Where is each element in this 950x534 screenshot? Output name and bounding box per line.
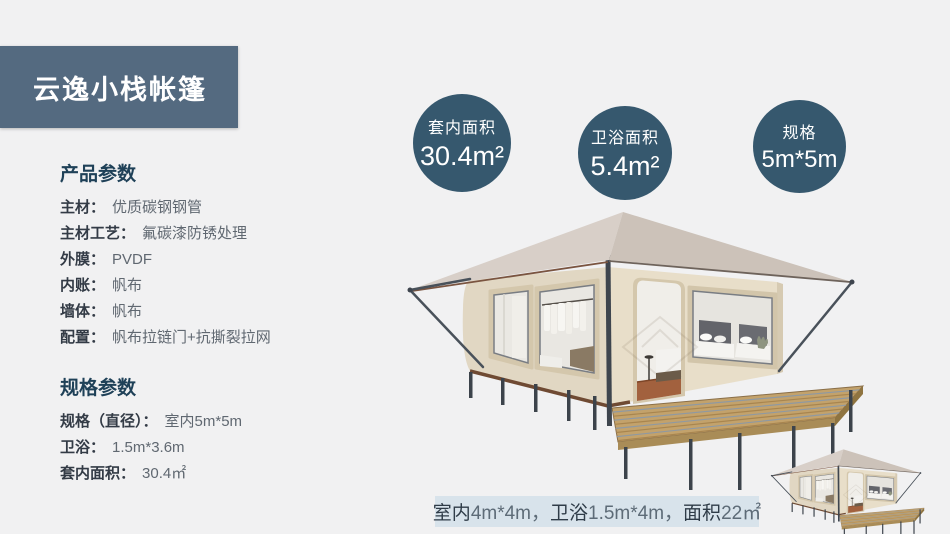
- param-value: 1.5m*3.6m: [112, 439, 185, 456]
- badge-indoor-area: 套内面积 30.4m²: [413, 94, 511, 192]
- badge-bath-area: 卫浴面积 5.4m²: [578, 106, 672, 200]
- param-value: 帆布拉链门+抗撕裂拉网: [112, 329, 271, 346]
- caption-value: 1.5m*4m，: [588, 498, 683, 525]
- param-value: 帆布: [112, 277, 142, 294]
- param-row: 墙体：帆布: [60, 299, 400, 325]
- page-title: 云逸小栈帐篷: [0, 68, 207, 107]
- param-value: 氟碳漆防锈处理: [142, 225, 247, 242]
- caption-label: 卫浴: [550, 498, 588, 525]
- badge-label: 规格: [782, 119, 816, 143]
- param-label: 内账：: [60, 277, 105, 294]
- badge-label: 卫浴面积: [591, 124, 659, 148]
- badge-value: 30.4m²: [420, 141, 504, 172]
- param-value: PVDF: [112, 251, 152, 268]
- param-row: 内账：帆布: [60, 273, 400, 299]
- tent-illustration-small: [765, 442, 940, 534]
- param-label: 规格（直径）：: [60, 413, 158, 430]
- param-label: 配置：: [60, 329, 105, 346]
- parameters-panel: 产品参数 主材：优质碳钢钢管 主材工艺：氟碳漆防锈处理 外膜：PVDF 内账：帆…: [60, 163, 400, 487]
- param-value: 优质碳钢钢管: [112, 199, 202, 216]
- param-value: 帆布: [112, 303, 142, 320]
- caption-value: 22㎡: [721, 498, 761, 525]
- param-row: 套内面积：30.4㎡: [60, 461, 400, 487]
- page: 云逸小栈帐篷 产品参数 主材：优质碳钢钢管 主材工艺：氟碳漆防锈处理 外膜：PV…: [0, 0, 950, 534]
- badge-value: 5.4m²: [590, 151, 659, 182]
- param-row: 外膜：PVDF: [60, 247, 400, 273]
- param-value: 30.4㎡: [142, 465, 186, 482]
- param-row: 卫浴：1.5m*3.6m: [60, 435, 400, 461]
- caption-label: 室内: [433, 498, 471, 525]
- dimensions-caption: 室内4m*4m，卫浴1.5m*4m，面积22㎡: [435, 496, 759, 527]
- param-label: 套内面积：: [60, 465, 135, 482]
- param-row: 配置：帆布拉链门+抗撕裂拉网: [60, 325, 400, 351]
- param-label: 外膜：: [60, 251, 105, 268]
- badge-size: 规格 5m*5m: [753, 100, 846, 193]
- param-row: 规格（直径）：室内5m*5m: [60, 409, 400, 435]
- param-label: 主材工艺：: [60, 225, 135, 242]
- caption-label: 面积: [683, 498, 721, 525]
- param-label: 墙体：: [60, 303, 105, 320]
- title-box: 云逸小栈帐篷: [0, 46, 238, 128]
- spec-params-heading: 规格参数: [60, 377, 400, 401]
- param-label: 卫浴：: [60, 439, 105, 456]
- param-row: 主材：优质碳钢钢管: [60, 195, 400, 221]
- param-value: 室内5m*5m: [165, 413, 243, 430]
- badge-label: 套内面积: [428, 114, 496, 138]
- badge-value: 5m*5m: [761, 146, 837, 174]
- product-params-heading: 产品参数: [60, 163, 400, 187]
- caption-value: 4m*4m，: [471, 498, 550, 525]
- param-row: 主材工艺：氟碳漆防锈处理: [60, 221, 400, 247]
- param-label: 主材：: [60, 199, 105, 216]
